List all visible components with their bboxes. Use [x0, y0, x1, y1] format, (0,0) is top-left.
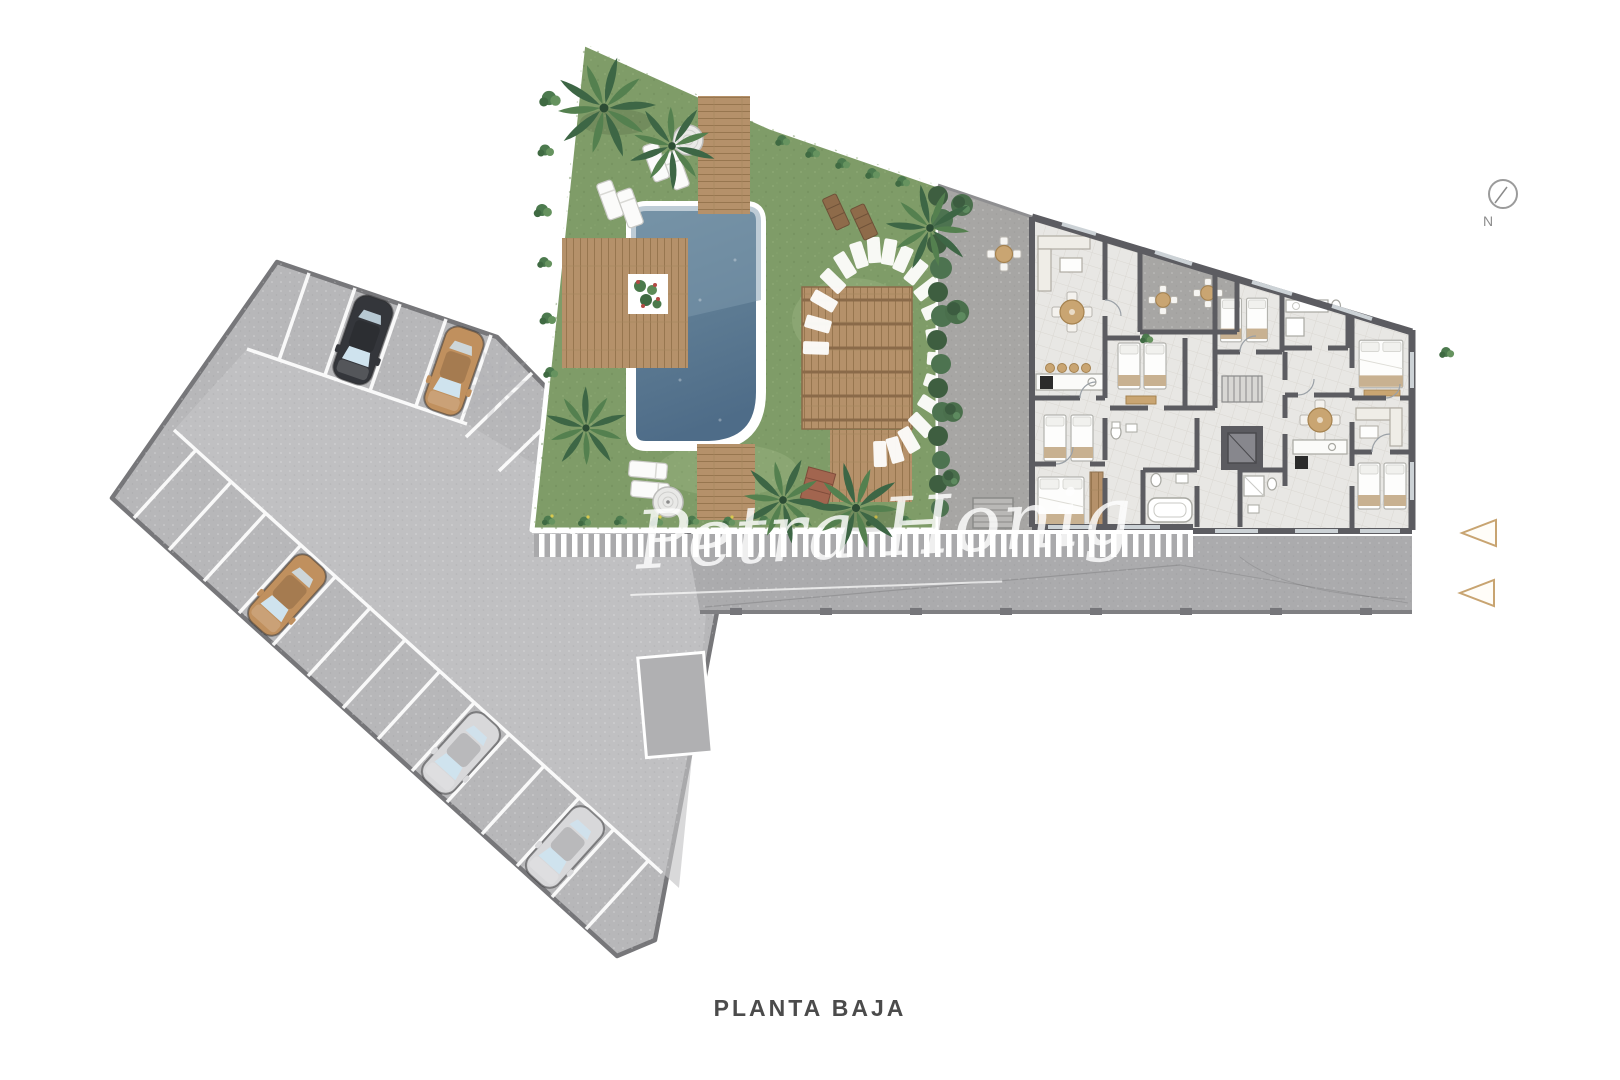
round-tree-2 [945, 300, 969, 324]
bed-10 [1384, 463, 1406, 509]
compass-label: N [1483, 213, 1493, 229]
bed-5 [1144, 343, 1166, 389]
site-plan: N Petra Honig PLANTA BAJA [0, 0, 1620, 1080]
bed-1 [1044, 415, 1066, 461]
bed-7 [1247, 298, 1268, 342]
compass-icon [1489, 180, 1517, 208]
floor-label: PLANTA BAJA [714, 995, 907, 1021]
planter-box [628, 274, 668, 314]
bed-2 [1071, 415, 1093, 461]
empty-parking-space [638, 652, 712, 757]
dresser-1 [1126, 396, 1156, 404]
bed-9 [1358, 463, 1380, 509]
bed-4 [1118, 343, 1140, 389]
round-tree-3 [943, 402, 963, 422]
bed-8 [1359, 340, 1403, 388]
floor-plan-page: N Petra Honig PLANTA BAJA [0, 0, 1620, 1080]
wood-deck-left [562, 238, 688, 368]
